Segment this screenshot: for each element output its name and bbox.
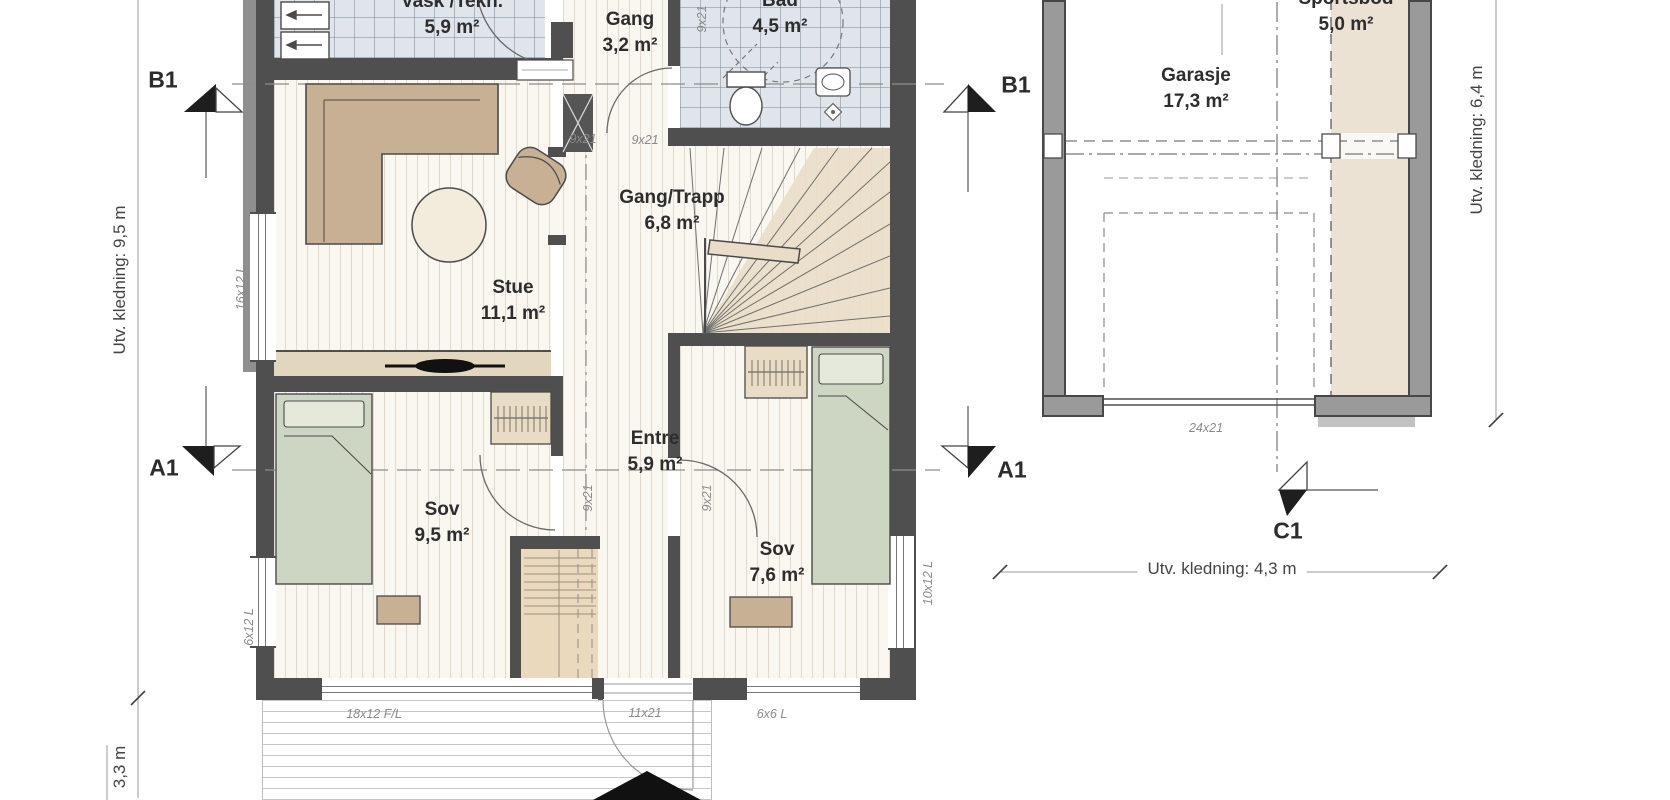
- room-area: 5,9 m²: [628, 452, 683, 478]
- dimension-line-right: [1489, 0, 1503, 427]
- dimension-right: Utv. kledning: 6,4 m: [1467, 66, 1487, 215]
- dimension-left-lower: 3,3 m: [110, 746, 130, 789]
- room-name: Entre: [628, 426, 683, 452]
- marker-label-b1-left: B1: [148, 67, 177, 94]
- section-marker-b1-right: [944, 84, 996, 192]
- room-label-sportsbod: Sportsbod 5,0 m²: [1299, 0, 1394, 38]
- door-label-24x21-garage: 24x21: [1189, 421, 1223, 435]
- room-area: 11,1 m²: [481, 301, 545, 327]
- window-label-16x12: 16x12 L: [234, 266, 248, 310]
- door-label-11x21-entry: 11x21: [628, 706, 661, 720]
- room-area: 3,2 m²: [603, 33, 658, 59]
- wall-gang-bad: [668, 0, 680, 66]
- door-label-9x21-bad: 9x21: [631, 133, 658, 147]
- room-name: Sov: [415, 497, 470, 523]
- garage-wall-right: [1408, 0, 1432, 417]
- room-area: 9,5 m²: [415, 523, 470, 549]
- wall-stue-sov1: [256, 376, 563, 392]
- marker-label-b1-right: B1: [1001, 72, 1030, 99]
- room-name: Sportsbod: [1299, 0, 1394, 12]
- window-label-10x12: 10x12 L: [921, 561, 935, 605]
- wall-vask-bottom: [274, 58, 563, 80]
- room-name: Garasje: [1161, 63, 1231, 89]
- tv-bench-band: [274, 350, 551, 376]
- room-name: Stue: [481, 275, 545, 301]
- room-name: Bad: [753, 0, 808, 14]
- room-area: 5,0 m²: [1299, 12, 1394, 38]
- window-sov2-10x12: [888, 534, 914, 650]
- dimension-garage-width: Utv. kledning: 4,3 m: [1138, 559, 1307, 579]
- room-label-stue: Stue 11,1 m²: [481, 275, 545, 327]
- room-label-gangtrapp: Gang/Trapp 6,8 m²: [619, 185, 725, 237]
- wall-closet-top: [510, 536, 600, 549]
- door-label-9x21-sov2: 9x21: [700, 484, 714, 511]
- window-front-18x12: [320, 678, 600, 700]
- room-area: 6,8 m²: [619, 211, 725, 237]
- wall-stair-sov2: [668, 333, 890, 346]
- room-label-vask: Vask /Tekn. 5,9 m²: [401, 0, 503, 41]
- sportsbod-truss-gap: [1331, 133, 1408, 159]
- room-label-sov1: Sov 9,5 m²: [415, 497, 470, 549]
- floor-plan-canvas: Vask /Tekn. 5,9 m² Gang 3,2 m² Bad 4,5 m…: [0, 0, 1670, 800]
- sportsbod-step: [1318, 417, 1415, 427]
- window-front-6x6: [745, 678, 862, 700]
- room-label-gang: Gang 3,2 m²: [603, 7, 658, 59]
- floor-gangtrapp: [563, 130, 890, 333]
- garage-wall-left: [1042, 0, 1066, 417]
- window-label-6x12: 6x12 L: [242, 608, 256, 646]
- garage-wall-bottom-right: [1314, 395, 1432, 417]
- wall-vask-gang-stub: [551, 22, 573, 58]
- section-marker-a1-right: [942, 406, 996, 478]
- floor-sportsbod: [1331, 0, 1408, 395]
- room-area: 5,9 m²: [401, 15, 503, 41]
- room-area: 7,6 m²: [750, 563, 805, 589]
- window-stue-16x12: [250, 212, 276, 362]
- marker-label-c1: C1: [1273, 518, 1302, 545]
- room-name: Gang: [603, 7, 658, 33]
- room-name: Vask /Tekn.: [401, 0, 503, 15]
- window-label-18x12: 18x12 F/L: [346, 707, 402, 721]
- room-label-bad: Bad 4,5 m²: [753, 0, 808, 40]
- dimension-line-left: [107, 0, 145, 800]
- section-marker-b1-left: [184, 84, 242, 178]
- room-area: 4,5 m²: [753, 14, 808, 40]
- entry-door-gap: [603, 678, 693, 700]
- door-label-9x21-stue: 9x21: [569, 132, 596, 146]
- wall-closet-left: [510, 549, 521, 680]
- dimension-left: Utv. kledning: 9,5 m: [110, 206, 130, 355]
- room-label-entre: Entre 5,9 m²: [628, 426, 683, 478]
- room-name: Gang/Trapp: [619, 185, 725, 211]
- wall-bad-bottom: [668, 128, 916, 146]
- floor-sov2: [680, 346, 890, 678]
- room-area: 17,3 m²: [1161, 89, 1231, 115]
- room-name: Sov: [750, 537, 805, 563]
- window-label-6x6: 6x6 L: [757, 707, 788, 721]
- wall-entre-sov2-lower: [668, 536, 680, 680]
- door-label-9x21-sov1: 9x21: [581, 484, 595, 511]
- garage-wall-bottom-left: [1042, 395, 1104, 417]
- door-label-9x21-gangtop: 9x21: [695, 5, 709, 32]
- section-marker-a1-left: [182, 386, 240, 476]
- room-label-sov2: Sov 7,6 m²: [750, 537, 805, 589]
- marker-label-a1-right: A1: [997, 457, 1026, 484]
- room-label-garasje: Garasje 17,3 m²: [1161, 63, 1231, 115]
- closet-floor: [521, 549, 598, 678]
- marker-label-a1-left: A1: [149, 455, 178, 482]
- garage-door-line: [1104, 399, 1314, 405]
- wall-sov1-entre: [551, 376, 563, 456]
